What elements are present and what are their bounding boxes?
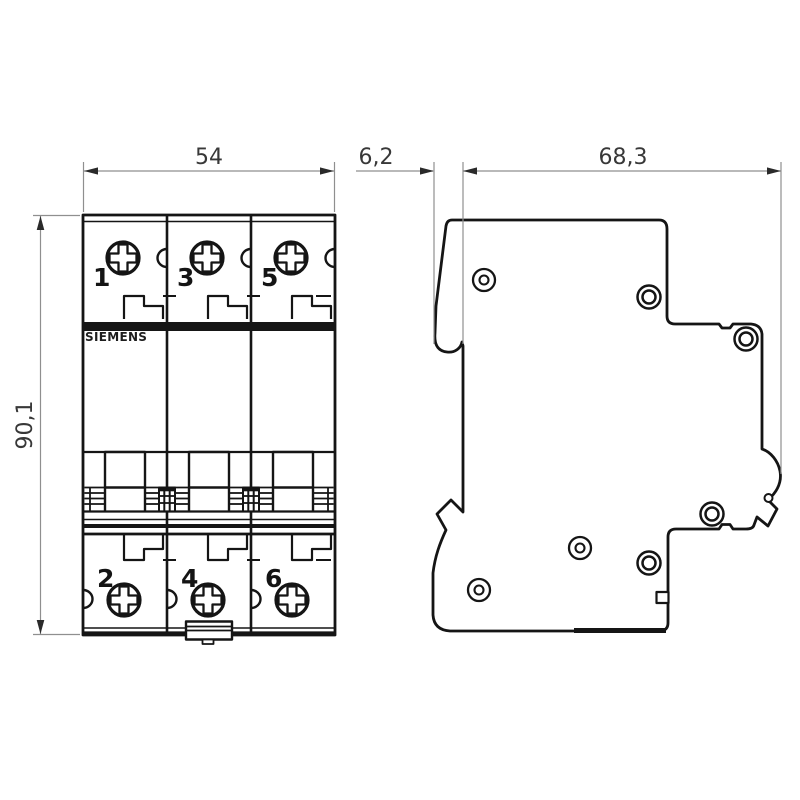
- dimension-front-height: 90,1: [13, 216, 80, 635]
- breaker-dimension-drawing: SIEMENS: [0, 0, 800, 800]
- pole-number-label: 6: [265, 564, 282, 593]
- dimension-front-width: 54: [84, 145, 335, 212]
- rivet-icon: [701, 503, 724, 526]
- dimension-label: 68,3: [599, 145, 648, 170]
- rivet-icon: [468, 579, 490, 601]
- dimension-label: 90,1: [13, 401, 38, 450]
- pole-number-label: 3: [177, 263, 194, 292]
- arrowhead: [37, 620, 45, 634]
- pole-link-ladder: [243, 488, 259, 512]
- din-clip-handle: [186, 622, 232, 645]
- dimension-label: 6,2: [359, 145, 394, 170]
- pole-link-ladder: [159, 488, 175, 512]
- front-view: SIEMENS: [83, 215, 335, 644]
- arrowhead: [767, 167, 781, 174]
- arrowhead: [84, 167, 98, 174]
- phillips-screw-icon: [275, 242, 307, 274]
- arrowhead: [463, 167, 477, 174]
- pole-number-label: 4: [181, 564, 198, 593]
- rivet-icon: [473, 269, 495, 291]
- rivet-icon: [569, 537, 591, 559]
- latch-pivot: [765, 494, 773, 502]
- pole-number-label: 1: [93, 263, 110, 292]
- edge-notch: [657, 592, 669, 603]
- front-outline: [83, 215, 335, 635]
- arrowhead: [37, 216, 45, 230]
- rivet-icon: [638, 552, 661, 575]
- brand-label: SIEMENS: [85, 330, 147, 344]
- phillips-screw-icon: [107, 242, 139, 274]
- dimension-label: 54: [195, 145, 223, 170]
- pole-number-label: 5: [261, 263, 278, 292]
- arrowhead: [320, 167, 334, 174]
- phillips-screw-icon: [191, 242, 223, 274]
- rivet-icon: [735, 328, 758, 351]
- side-view: [433, 220, 780, 631]
- rivet-icon: [638, 286, 661, 309]
- pole-number-label: 2: [97, 564, 114, 593]
- arrowhead: [420, 167, 434, 174]
